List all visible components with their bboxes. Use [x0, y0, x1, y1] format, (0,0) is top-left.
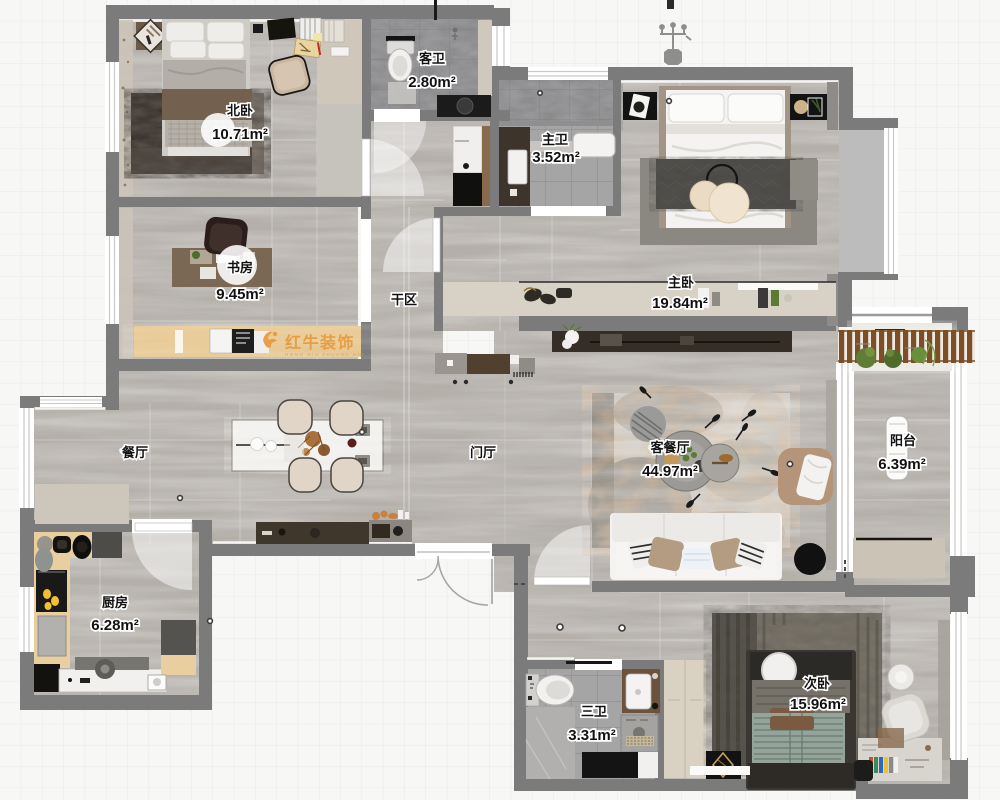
svg-text:3.31m²: 3.31m² — [568, 727, 616, 744]
svg-text:门厅: 门厅 — [470, 445, 496, 460]
svg-text:阳台: 阳台 — [890, 433, 916, 448]
svg-text:干区: 干区 — [391, 292, 417, 307]
svg-text:主卫: 主卫 — [542, 132, 568, 147]
svg-text:10.71m²: 10.71m² — [212, 126, 268, 143]
svg-text:HONG NIU ZHUANG SHI: HONG NIU ZHUANG SHI — [285, 352, 365, 357]
svg-text:2.80m²: 2.80m² — [408, 74, 456, 91]
svg-text:客餐厅: 客餐厅 — [650, 440, 689, 455]
svg-text:3.52m²: 3.52m² — [532, 149, 580, 166]
svg-text:44.97m²: 44.97m² — [642, 463, 698, 480]
svg-text:厨房: 厨房 — [102, 595, 128, 610]
svg-text:15.96m²: 15.96m² — [790, 696, 846, 713]
svg-text:红牛装饰: 红牛装饰 — [285, 333, 355, 352]
svg-text:19.84m²: 19.84m² — [652, 295, 708, 312]
svg-text:三卫: 三卫 — [581, 704, 607, 719]
svg-text:北卧: 北卧 — [227, 103, 253, 118]
svg-text:书房: 书房 — [227, 260, 253, 275]
svg-text:主卧: 主卧 — [668, 275, 694, 290]
svg-text:6.28m²: 6.28m² — [91, 617, 139, 634]
svg-text:6.39m²: 6.39m² — [878, 456, 926, 473]
svg-text:9.45m²: 9.45m² — [216, 286, 264, 303]
svg-text:餐厅: 餐厅 — [121, 445, 148, 460]
svg-text:次卧: 次卧 — [804, 676, 830, 691]
svg-text:客卫: 客卫 — [419, 51, 445, 66]
